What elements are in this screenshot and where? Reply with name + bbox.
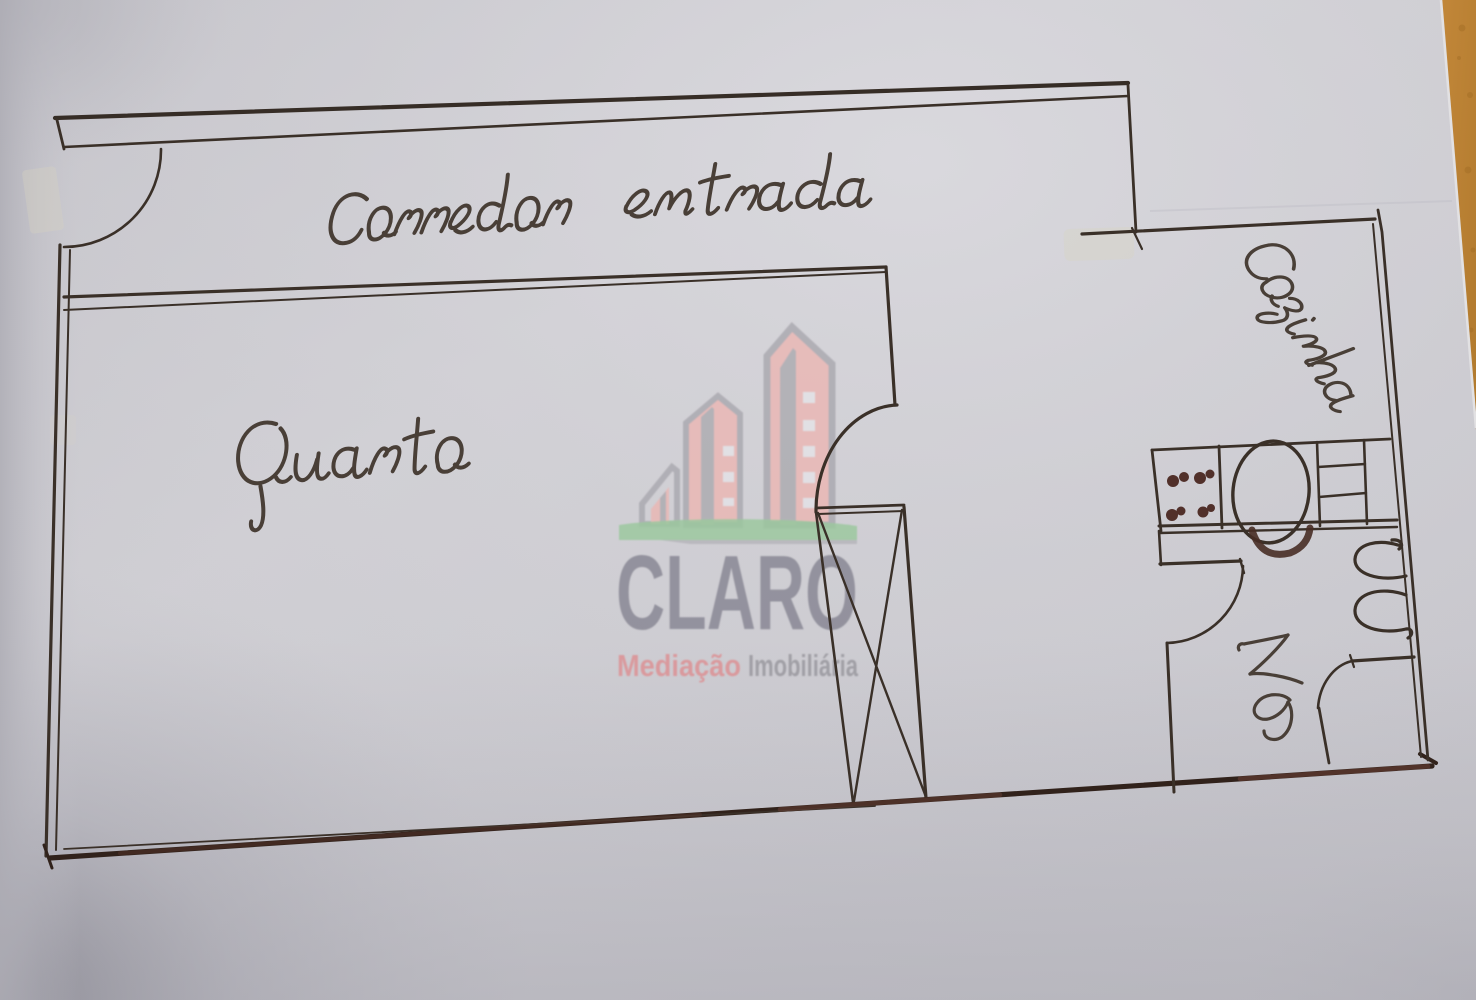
svg-text:Mediação: Mediação (617, 648, 741, 683)
svg-text:Imobiliária: Imobiliária (748, 648, 859, 683)
